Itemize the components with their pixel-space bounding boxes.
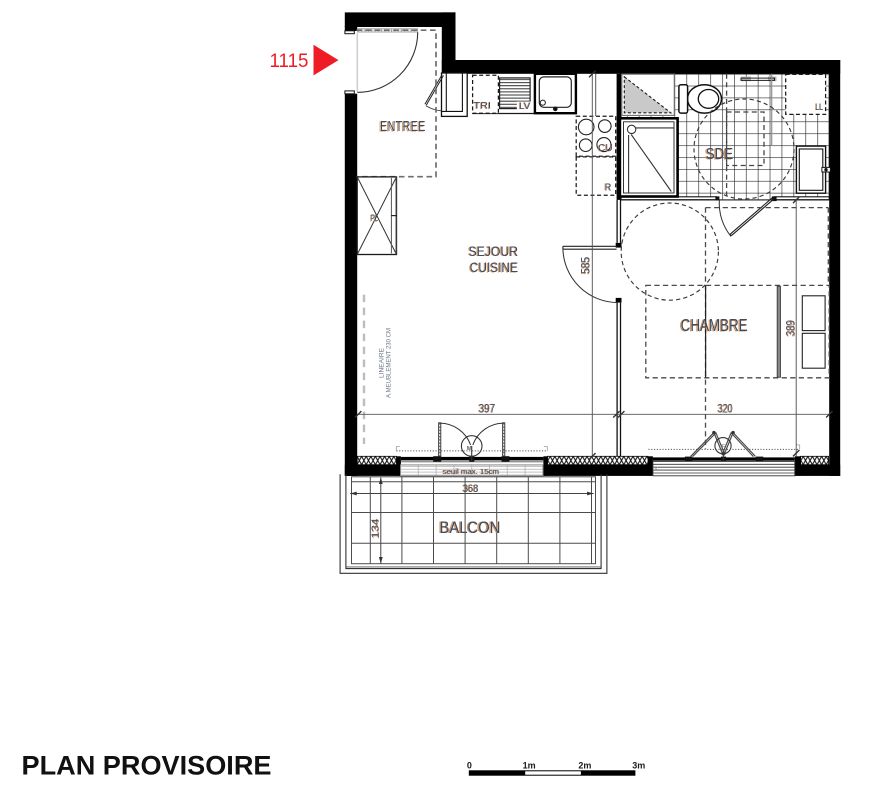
svg-text:SEJOUR: SEJOUR [469, 244, 519, 259]
svg-text:397: 397 [479, 403, 496, 415]
svg-text:ENTREE: ENTREE [380, 118, 426, 135]
svg-text:320: 320 [718, 403, 733, 415]
svg-text:R: R [605, 183, 612, 194]
svg-text:1m: 1m [523, 761, 536, 771]
svg-text:CUISINE: CUISINE [470, 260, 518, 275]
svg-text:PLAN PROVISOIRE: PLAN PROVISOIRE [22, 750, 272, 780]
svg-text:389: 389 [786, 320, 798, 336]
svg-text:BALCON: BALCON [440, 518, 501, 537]
svg-text:LINEAIRE: LINEAIRE [378, 348, 385, 378]
svg-text:2m: 2m [578, 761, 591, 771]
svg-text:0: 0 [467, 761, 472, 771]
svg-text:CHAMBRE: CHAMBRE [681, 315, 748, 335]
svg-text:3m: 3m [632, 761, 645, 771]
svg-text:1115: 1115 [270, 50, 309, 72]
svg-text:368: 368 [463, 483, 479, 495]
svg-text:TRI: TRI [474, 101, 491, 111]
svg-text:134: 134 [370, 518, 382, 538]
svg-text:PL: PL [371, 213, 379, 224]
svg-text:LL: LL [815, 102, 823, 112]
svg-text:SDE: SDE [706, 146, 734, 163]
svg-text:A.MEUBLEMENT 230 CM: A.MEUBLEMENT 230 CM [386, 328, 393, 398]
svg-text:uc: uc [653, 466, 659, 472]
svg-text:585: 585 [580, 257, 592, 274]
svg-text:seuil max. 15cm: seuil max. 15cm [443, 467, 499, 476]
svg-text:CU: CU [598, 143, 612, 154]
svg-text:LV: LV [519, 101, 531, 111]
